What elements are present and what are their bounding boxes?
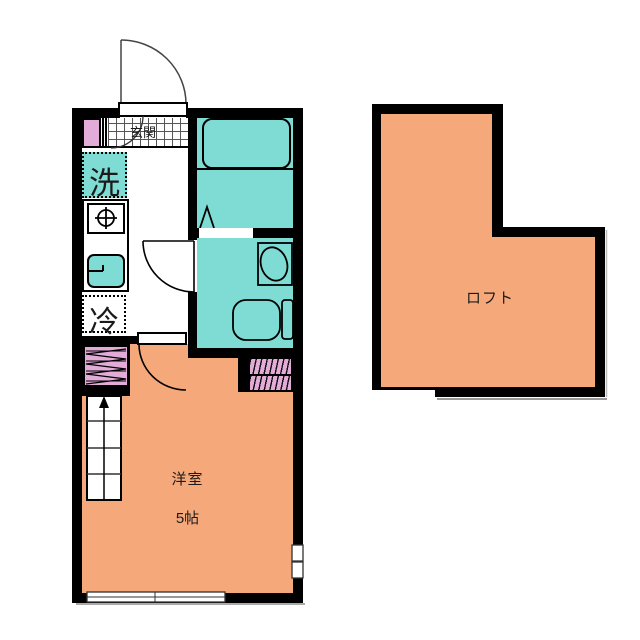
washer-label: 洗 — [82, 158, 127, 203]
entrance-label: 玄関 — [130, 122, 156, 141]
fridge-label: 冷 — [82, 297, 126, 341]
burner-icon — [95, 207, 117, 229]
loft-floor — [381, 114, 595, 387]
window-bottom — [87, 592, 225, 602]
entrance-door — [119, 40, 187, 118]
washbasin — [256, 243, 292, 285]
loft-structure — [372, 104, 607, 399]
bath-washroom-opening — [199, 228, 253, 238]
closet-hatch — [86, 349, 126, 384]
room-door — [138, 333, 186, 390]
room-label: 洋室 — [82, 468, 293, 489]
faucet-icon — [87, 265, 103, 271]
toilet — [233, 300, 293, 340]
bathtub — [197, 119, 293, 169]
window-right — [292, 545, 303, 578]
room-size-label: 5帖 — [82, 507, 293, 528]
floorplan-canvas: 玄関 洗 冷 洋室 5帖 ロフト — [0, 0, 640, 640]
washroom-door — [143, 240, 197, 292]
loft-label: ロフト — [430, 287, 550, 308]
bath-door-triangle — [200, 207, 214, 228]
